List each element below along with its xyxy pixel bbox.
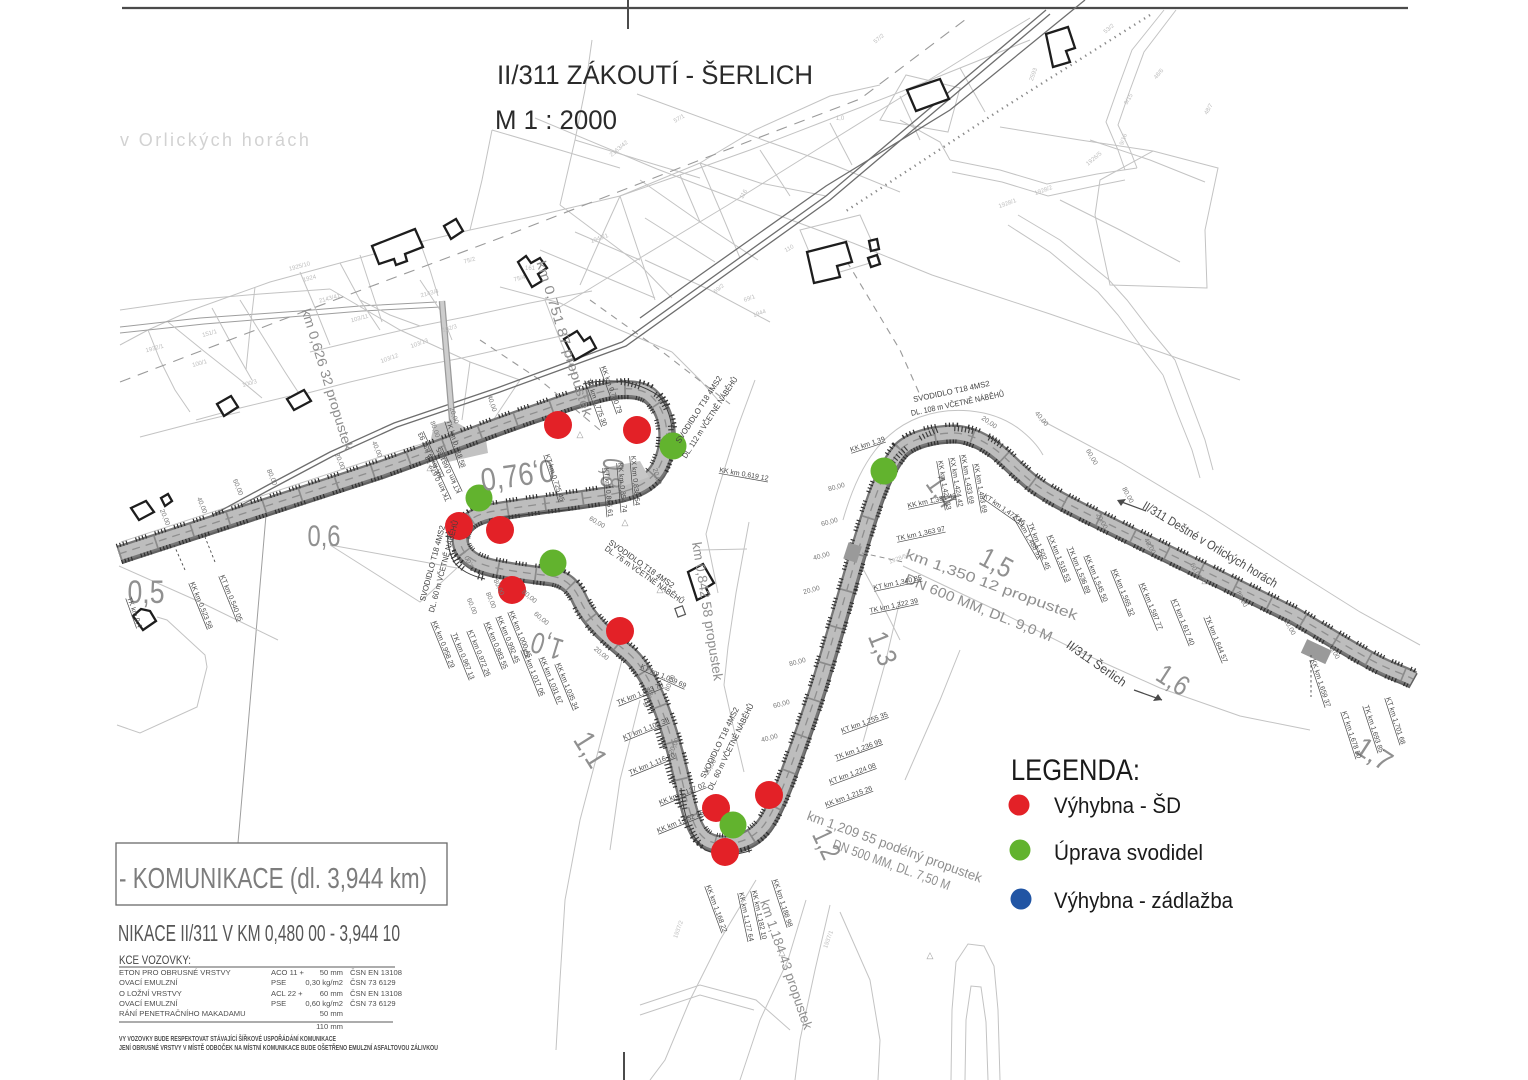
svg-text:103/13: 103/13 (410, 338, 430, 350)
svg-text:1925/10: 1925/10 (288, 261, 311, 273)
svg-text:2593: 2593 (1029, 67, 1039, 82)
svg-text:KK km 1,587 77: KK km 1,587 77 (1138, 582, 1163, 631)
svg-text:OVACÍ EMULZNÍ: OVACÍ EMULZNÍ (119, 999, 178, 1008)
svg-text:1926/5: 1926/5 (1085, 151, 1103, 168)
svg-text:53/2: 53/2 (1103, 23, 1116, 36)
svg-text:80,00: 80,00 (827, 482, 845, 493)
svg-text:48/7: 48/7 (1204, 102, 1215, 116)
svg-text:KT km 1,255 35: KT km 1,255 35 (840, 711, 889, 734)
svg-text:TK km 1,322 39: TK km 1,322 39 (869, 598, 919, 615)
svg-text:110: 110 (784, 244, 796, 254)
svg-text:110 mm: 110 mm (316, 1022, 343, 1031)
svg-text:75/2: 75/2 (463, 256, 476, 265)
svg-text:50 mm: 50 mm (320, 968, 343, 977)
svg-text:v Orlických horách: v Orlických horách (120, 130, 311, 150)
svg-text:△: △ (577, 429, 584, 439)
svg-text:0,60 kg/m2: 0,60 kg/m2 (305, 999, 343, 1008)
svg-text:KX km 1,518 53: KX km 1,518 53 (1046, 534, 1071, 583)
svg-text:DL. 76 m VČETNĚ NÁBĚHŮ: DL. 76 m VČETNĚ NÁBĚHŮ (603, 544, 686, 606)
svg-text:KK km 1,215 26: KK km 1,215 26 (824, 785, 873, 809)
svg-text:OVACÍ EMULZNÍ: OVACÍ EMULZNÍ (119, 978, 178, 987)
svg-text:69/2: 69/2 (713, 283, 726, 296)
svg-text:57/1: 57/1 (673, 113, 687, 124)
svg-text:KT km 0,540 05: KT km 0,540 05 (218, 574, 243, 622)
svg-text:60,00: 60,00 (588, 515, 606, 530)
svg-text:KT km 1,617 40: KT km 1,617 40 (1170, 598, 1195, 646)
svg-text:40,00: 40,00 (812, 551, 830, 562)
svg-text:△: △ (427, 462, 434, 472)
svg-text:km 0,626 32 propustek: km 0,626 32 propustek (298, 307, 356, 453)
svg-text:20,00: 20,00 (980, 415, 998, 431)
svg-text:II/311 Šerlich: II/311 Šerlich (1064, 637, 1130, 689)
svg-text:RÁNÍ PENETRAČNÍHO MAKADAMU: RÁNÍ PENETRAČNÍHO MAKADAMU (119, 1009, 246, 1018)
svg-text:2143/41: 2143/41 (318, 293, 341, 305)
svg-text:TK km 1,236 99: TK km 1,236 99 (834, 738, 883, 762)
svg-text:LEGENDA:: LEGENDA: (1011, 754, 1140, 787)
svg-text:TK km 1,536 89: TK km 1,536 89 (1066, 546, 1091, 595)
svg-text:SVODIDLO T18 4MS2: SVODIDLO T18 4MS2 (607, 538, 676, 590)
svg-text:60,00: 60,00 (231, 478, 244, 497)
svg-text:60,00: 60,00 (1084, 448, 1099, 466)
svg-text:116: 116 (739, 188, 749, 200)
svg-text:60 mm: 60 mm (320, 989, 343, 998)
svg-text:103/12: 103/12 (380, 353, 400, 365)
svg-text:ČSN 73 6129: ČSN 73 6129 (350, 978, 396, 987)
svg-text:80,00: 80,00 (428, 420, 440, 439)
svg-text:JENÍ OBRUSNÉ VRSTVY V MÍSTĚ OD: JENÍ OBRUSNÉ VRSTVY V MÍSTĚ ODBOČEK NA M… (119, 1043, 438, 1052)
svg-text:80,00: 80,00 (484, 591, 497, 610)
svg-text:△: △ (779, 947, 786, 957)
svg-text:100/3: 100/3 (242, 379, 259, 389)
svg-text:161: 161 (525, 266, 536, 272)
svg-text:60,00: 60,00 (532, 611, 550, 627)
svg-text:KT km 1,224 08: KT km 1,224 08 (828, 762, 877, 785)
svg-text:60,00: 60,00 (465, 597, 478, 616)
svg-text:40,00: 40,00 (1033, 410, 1049, 428)
svg-text:△: △ (657, 584, 664, 594)
svg-text:1928/1: 1928/1 (998, 198, 1018, 210)
svg-text:100/1: 100/1 (192, 359, 209, 369)
svg-text:M 1 : 2000: M 1 : 2000 (495, 105, 617, 135)
svg-text:△: △ (1202, 575, 1209, 585)
svg-text:60,00: 60,00 (772, 699, 790, 710)
svg-text:KK km 1,483 69: KK km 1,483 69 (972, 463, 988, 513)
svg-text:Úprava svodidel: Úprava svodidel (1054, 840, 1203, 865)
svg-text:PSE: PSE (271, 978, 286, 987)
svg-text:- KOMUNIKACE (dl. 3,944 km): - KOMUNIKACE (dl. 3,944 km) (119, 863, 427, 895)
svg-text:1944: 1944 (752, 309, 767, 319)
svg-text:NIKACE II/311 V KM 0,480 00 -: NIKACE II/311 V KM 0,480 00 - 3,944 10 (118, 920, 400, 946)
svg-text:48/6: 48/6 (1153, 67, 1166, 80)
svg-text:O LOŽNÍ VRSTVY: O LOŽNÍ VRSTVY (119, 989, 182, 998)
svg-text:9/15: 9/15 (1124, 92, 1135, 106)
svg-text:KT km 1,678 50: KT km 1,678 50 (1340, 710, 1362, 759)
svg-text:KK km 1,177 64: KK km 1,177 64 (737, 892, 754, 942)
svg-text:△: △ (622, 517, 629, 527)
svg-text:KK km 1,659 37: KK km 1,659 37 (1309, 658, 1331, 708)
svg-text:KK km 1,168 22: KK km 1,168 22 (704, 884, 728, 933)
svg-text:0,30 kg/m2: 0,30 kg/m2 (305, 978, 343, 987)
svg-text:km 0,842 58 propustek: km 0,842 58 propustek (689, 541, 726, 682)
svg-text:40,00: 40,00 (485, 394, 497, 413)
svg-text:1,0: 1,0 (836, 116, 845, 122)
svg-text:PSE: PSE (271, 999, 286, 1008)
svg-text:KK km 1,545 50: KK km 1,545 50 (1083, 554, 1108, 603)
svg-text:75/4: 75/4 (513, 274, 526, 283)
svg-text:1932/1: 1932/1 (145, 344, 165, 355)
svg-text:50 mm: 50 mm (320, 1009, 343, 1018)
svg-text:II/311 ZÁKOUTÍ - ŠERLICH: II/311 ZÁKOUTÍ - ŠERLICH (497, 59, 813, 90)
svg-text:60,00: 60,00 (820, 517, 838, 528)
svg-text:20,00: 20,00 (333, 452, 346, 471)
svg-text:0,6: 0,6 (308, 520, 341, 553)
svg-text:103/11: 103/11 (350, 314, 369, 325)
svg-text:2143/4: 2143/4 (420, 289, 440, 300)
svg-text:KT km 1,701 68: KT km 1,701 68 (1384, 696, 1406, 745)
svg-text:ACO 11 +: ACO 11 + (271, 968, 305, 977)
svg-text:Výhybna - ŠD: Výhybna - ŠD (1054, 793, 1181, 818)
svg-text:40,00: 40,00 (195, 496, 208, 515)
svg-text:TK km 1,363 97: TK km 1,363 97 (896, 526, 946, 543)
svg-text:1937/2: 1937/2 (673, 919, 685, 939)
svg-text:1937/1: 1937/1 (823, 929, 835, 949)
svg-text:TK km 1,644 57: TK km 1,644 57 (1203, 615, 1228, 664)
svg-text:VY VOZOVKY BUDE RESPEKTOVAT ST: VY VOZOVKY BUDE RESPEKTOVAT STÁVAJÍCÍ ŠÍ… (119, 1034, 336, 1043)
svg-text:1,3: 1,3 (862, 627, 903, 670)
svg-text:KK km 0,619 12: KK km 0,619 12 (719, 467, 769, 483)
svg-text:69/1: 69/1 (743, 294, 757, 304)
svg-text:80,00: 80,00 (265, 468, 278, 487)
svg-text:20,00: 20,00 (802, 585, 820, 596)
svg-text:KK km 0,523 58: KK km 0,523 58 (188, 581, 213, 630)
svg-text:40,00: 40,00 (370, 440, 383, 459)
svg-text:80,00: 80,00 (788, 657, 806, 668)
svg-text:KK km 1,39: KK km 1,39 (849, 436, 886, 454)
svg-text:20,00: 20,00 (592, 646, 610, 662)
svg-text:151/1: 151/1 (202, 329, 219, 339)
svg-text:1928/51: 1928/51 (888, 552, 911, 565)
svg-text:ČSN EN 13108: ČSN EN 13108 (350, 968, 402, 977)
svg-text:ČSN EN 13108: ČSN EN 13108 (350, 989, 402, 998)
svg-text:ACL 22 +: ACL 22 + (271, 989, 303, 998)
svg-text:1,0: 1,0 (527, 625, 567, 666)
svg-text:1,1: 1,1 (567, 726, 614, 774)
svg-text:ČSN 73 6129: ČSN 73 6129 (350, 999, 396, 1008)
svg-text:KCE VOZOVKY:: KCE VOZOVKY: (119, 953, 191, 967)
svg-text:KK km 1,565 32: KK km 1,565 32 (1110, 568, 1135, 617)
svg-text:Výhybna - zádlažba: Výhybna - zádlažba (1054, 888, 1234, 913)
svg-text:57/2: 57/2 (873, 33, 886, 46)
svg-text:40,00: 40,00 (760, 733, 778, 744)
svg-text:ETON PRO OBRUSNÉ VRSTVY: ETON PRO OBRUSNÉ VRSTVY (119, 968, 231, 977)
svg-text:1924: 1924 (303, 274, 318, 283)
svg-text:20,00: 20,00 (158, 508, 171, 527)
svg-text:KK km 0,958 29: KK km 0,958 29 (430, 620, 455, 669)
svg-text:△: △ (927, 950, 934, 960)
